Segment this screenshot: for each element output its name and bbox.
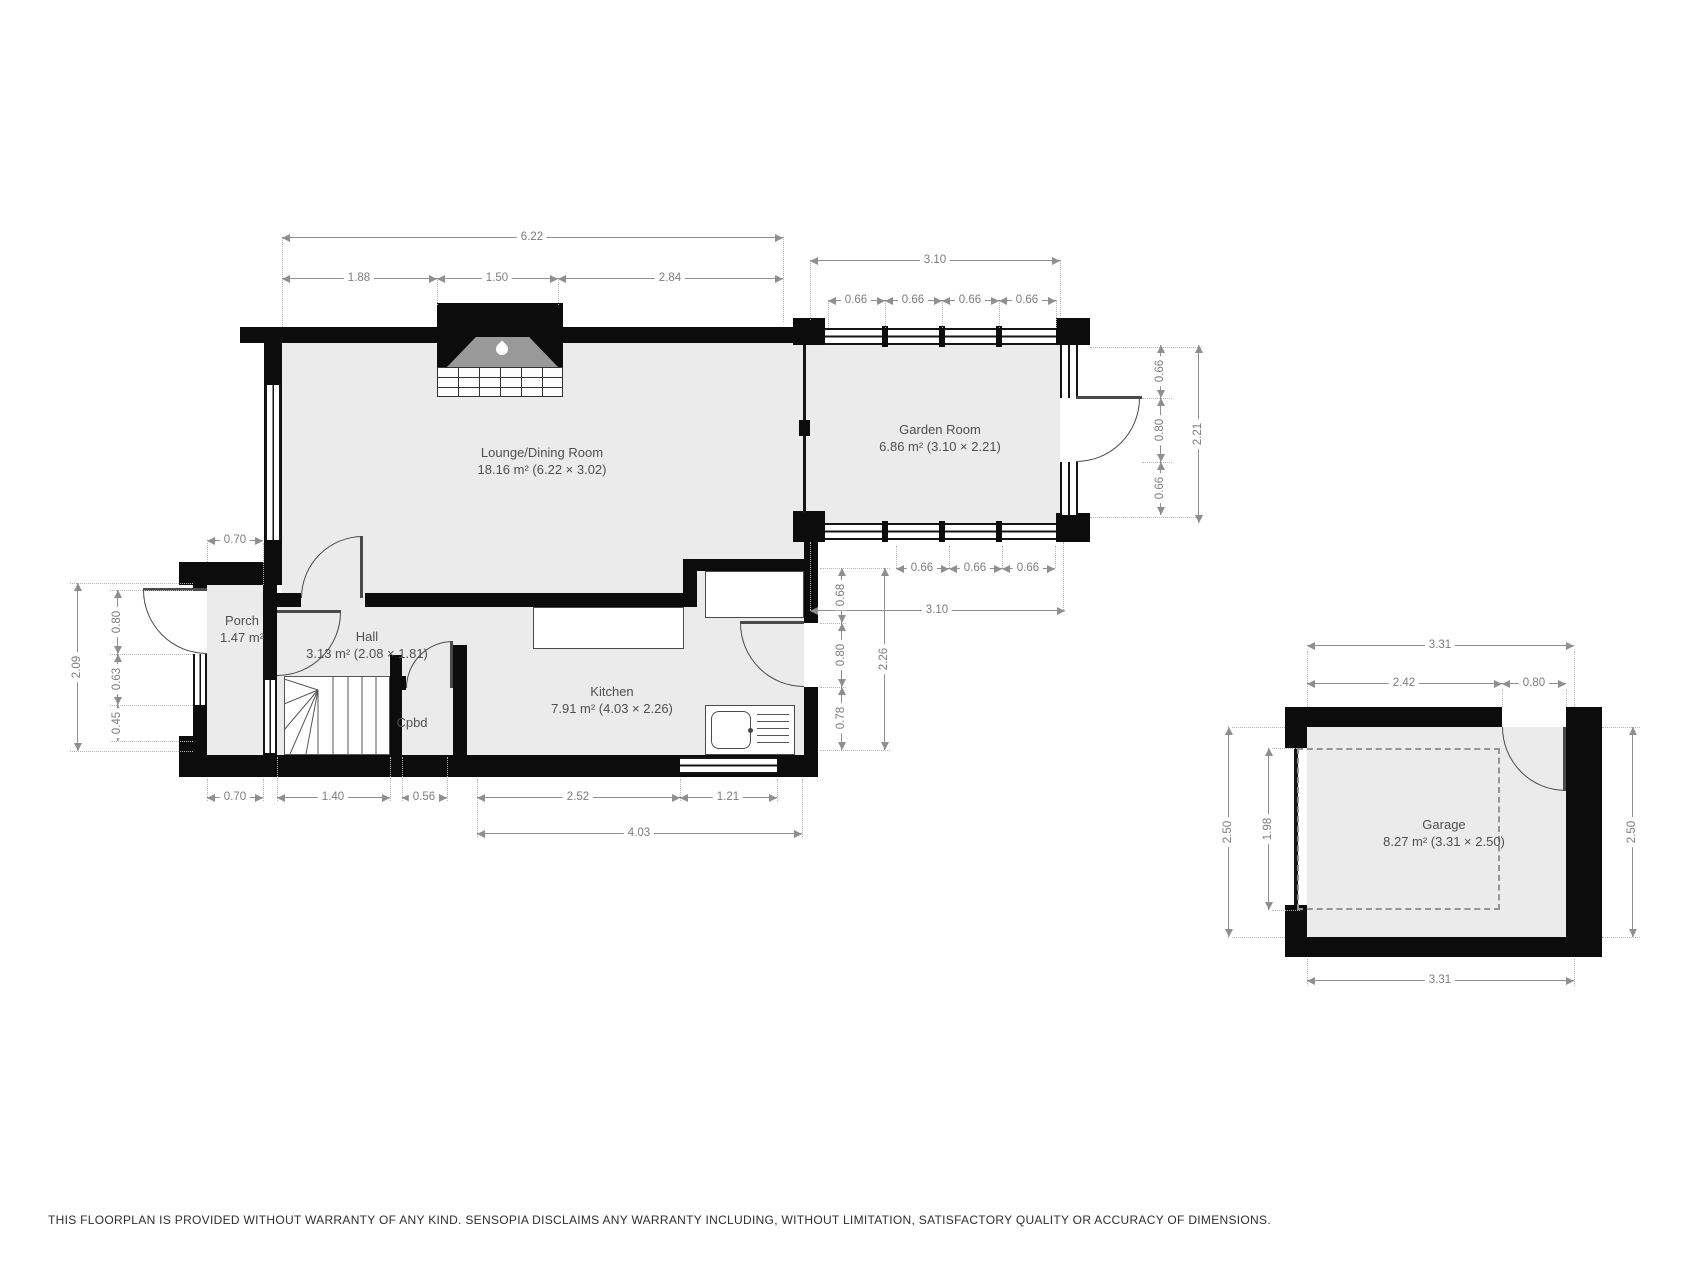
window-mullion	[996, 521, 1002, 542]
door-arc	[143, 590, 207, 654]
window	[1060, 345, 1078, 398]
wall	[453, 645, 467, 755]
leader-line	[802, 779, 803, 837]
door-leaf	[277, 610, 341, 613]
wall-corner	[1056, 513, 1090, 542]
leader-line	[70, 751, 193, 752]
wall-corner	[1056, 318, 1090, 345]
room-area: 8.27 m² (3.31 × 2.50)	[1383, 833, 1505, 850]
leader-line	[1090, 347, 1202, 348]
dim-garden-win-top-3: 0.66	[955, 294, 985, 306]
leader-line	[70, 583, 193, 584]
door-leaf	[360, 536, 363, 598]
room-label-porch: Porch 1.47 m²	[220, 612, 264, 646]
wall-corner	[793, 318, 825, 345]
room-label-lounge: Lounge/Dining Room 18.16 m² (6.22 × 3.02…	[478, 444, 607, 478]
window-mullion	[996, 326, 1002, 347]
leader-line	[390, 757, 391, 801]
window	[680, 757, 777, 774]
dim-garden-depth: 2.21	[1192, 419, 1204, 449]
room-name: Garden Room	[879, 421, 1001, 438]
room-area: 1.47 m²	[220, 629, 264, 646]
room-porch	[207, 585, 263, 755]
dim-lounge-seg-right: 2.84	[655, 272, 685, 284]
leader-line	[1272, 910, 1300, 911]
leader-line	[783, 237, 784, 322]
dim-kitchen-width: 4.03	[624, 827, 654, 839]
dim-porch-wall: 0.45	[111, 708, 123, 738]
leader-line	[110, 705, 193, 706]
dim-bottom-stairs: 1.40	[318, 791, 348, 803]
window-mullion	[882, 521, 888, 542]
kitchen-counter	[533, 607, 684, 649]
room-label-cupboard: Cpbd	[396, 714, 427, 731]
dim-garage-depth-left: 2.50	[1222, 817, 1234, 847]
leader-line	[777, 779, 778, 801]
divider-post	[799, 420, 810, 436]
room-label-garden: Garden Room 6.86 m² (3.10 × 2.21)	[879, 421, 1001, 455]
dim-lounge-seg-left: 1.88	[344, 272, 374, 284]
leader-line	[820, 750, 890, 751]
leader-line	[110, 741, 193, 742]
room-area: 18.16 m² (6.22 × 3.02)	[478, 461, 607, 478]
fireplace-hearth	[437, 367, 563, 397]
dim-garage-width-bottom: 3.31	[1425, 974, 1455, 986]
leader-line	[207, 543, 208, 562]
leader-line	[1055, 546, 1056, 568]
dim-lounge-seg-fireplace: 1.50	[482, 272, 512, 284]
dim-garden-right-door: 0.80	[1154, 415, 1166, 445]
leader-line	[1060, 260, 1061, 316]
room-name: Cpbd	[396, 714, 427, 731]
leader-line	[110, 590, 193, 591]
dim-bottom-cupboard: 0.56	[409, 791, 439, 803]
leader-line	[820, 568, 890, 569]
room-name: Hall	[306, 628, 428, 645]
window-mullion	[882, 326, 888, 347]
room-name: Porch	[220, 612, 264, 629]
window	[193, 654, 207, 705]
dim-garden-win-top-4: 0.66	[1012, 294, 1042, 306]
wall	[1566, 707, 1602, 957]
sink-faucet	[748, 728, 753, 733]
dim-garden-win-top-2: 0.66	[898, 294, 928, 306]
door-leaf	[1563, 727, 1566, 791]
dim-garden-width-top: 3.10	[920, 254, 950, 266]
leader-line	[1090, 517, 1202, 518]
dim-kitchen-wall-top: 0.68	[835, 580, 847, 610]
leader-line	[1602, 937, 1640, 938]
leader-line	[263, 543, 264, 585]
leader-line	[1502, 689, 1503, 707]
dim-garage-door: 0.80	[1519, 677, 1549, 689]
room-label-hall: Hall 3.13 m² (2.08 × 1.81)	[306, 628, 428, 662]
sink-drainer	[757, 714, 789, 747]
dim-garden-win-bottom-1: 0.66	[907, 562, 937, 574]
leader-line	[1574, 651, 1575, 707]
room-label-garage: Garage 8.27 m² (3.31 × 2.50)	[1383, 816, 1505, 850]
leader-line	[1574, 959, 1575, 986]
wall-corner	[1285, 905, 1307, 957]
dim-garage-inner-depth: 1.98	[1262, 814, 1274, 844]
room-name: Garage	[1383, 816, 1505, 833]
dim-garden-width-bottom: 3.10	[922, 604, 952, 616]
door-leaf	[740, 621, 804, 624]
leader-line	[1056, 300, 1057, 328]
dim-garden-right-win-top: 0.66	[1154, 356, 1166, 386]
dim-garage-top-left: 2.42	[1389, 677, 1419, 689]
dim-garden-right-win-bottom: 0.66	[1154, 473, 1166, 503]
wall	[1285, 707, 1502, 727]
dim-kitchen-door: 0.80	[835, 640, 847, 670]
disclaimer-text: THIS FLOORPLAN IS PROVIDED WITHOUT WARRA…	[48, 1213, 1271, 1227]
leader-line	[263, 779, 264, 801]
dim-garden-win-bottom-2: 0.66	[960, 562, 990, 574]
staircase	[284, 676, 390, 755]
dim-left-depth: 2.09	[71, 652, 83, 682]
leader-line	[477, 779, 478, 837]
window	[265, 385, 281, 540]
room-area: 7.91 m² (4.03 × 2.26)	[551, 700, 673, 717]
leader-line	[447, 757, 448, 801]
dim-garage-depth-right: 2.50	[1626, 817, 1638, 847]
leader-line	[810, 260, 811, 320]
leader-line	[1232, 937, 1285, 938]
kitchen-counter	[705, 571, 804, 618]
floorplan-canvas: 6.22 1.88 1.50 2.84 3.10 0.66 0.66 0.66 …	[0, 0, 1696, 1280]
dim-porch-width: 0.70	[220, 534, 250, 546]
room-area: 3.13 m² (2.08 × 1.81)	[306, 645, 428, 662]
leader-line	[1063, 542, 1064, 610]
wall	[390, 655, 402, 755]
room-label-kitchen: Kitchen 7.91 m² (4.03 × 2.26)	[551, 683, 673, 717]
window-mullion	[939, 521, 945, 542]
wall	[1285, 937, 1602, 957]
door-leaf	[1076, 396, 1142, 399]
wall	[365, 593, 697, 607]
dim-lounge-width-total: 6.22	[517, 231, 547, 243]
door-opening	[804, 623, 818, 687]
dim-kitchen-wall-bottom: 0.78	[835, 703, 847, 733]
wall-corner	[793, 511, 825, 542]
wall	[695, 559, 818, 571]
window-mullion	[939, 326, 945, 347]
dim-garden-win-top-1: 0.66	[841, 294, 871, 306]
leader-line	[1566, 689, 1567, 707]
dim-kitchen-depth: 2.26	[878, 644, 890, 674]
leader-line	[110, 654, 193, 655]
wall	[179, 736, 207, 777]
leader-line	[1232, 727, 1285, 728]
dim-porch-door: 0.80	[111, 607, 123, 637]
door-leaf	[450, 641, 453, 688]
room-name: Kitchen	[551, 683, 673, 700]
room-name: Lounge/Dining Room	[478, 444, 607, 461]
wall-corner	[1285, 707, 1307, 748]
room-area: 6.86 m² (3.10 × 2.21)	[879, 438, 1001, 455]
dim-bottom-kitchen: 2.52	[563, 791, 593, 803]
dim-porch-window: 0.63	[111, 664, 123, 694]
window	[263, 680, 277, 753]
door-arc	[1076, 398, 1140, 462]
leader-line	[1272, 748, 1297, 749]
dim-bottom-kitchen-window: 1.21	[713, 791, 743, 803]
wall	[277, 593, 301, 607]
dim-garage-width-top: 3.31	[1425, 639, 1455, 651]
dim-bottom-porch: 0.70	[220, 791, 250, 803]
sink-bowl	[711, 711, 751, 749]
dim-garden-win-bottom-3: 0.66	[1013, 562, 1043, 574]
leader-line	[810, 542, 811, 610]
window	[1060, 462, 1078, 515]
